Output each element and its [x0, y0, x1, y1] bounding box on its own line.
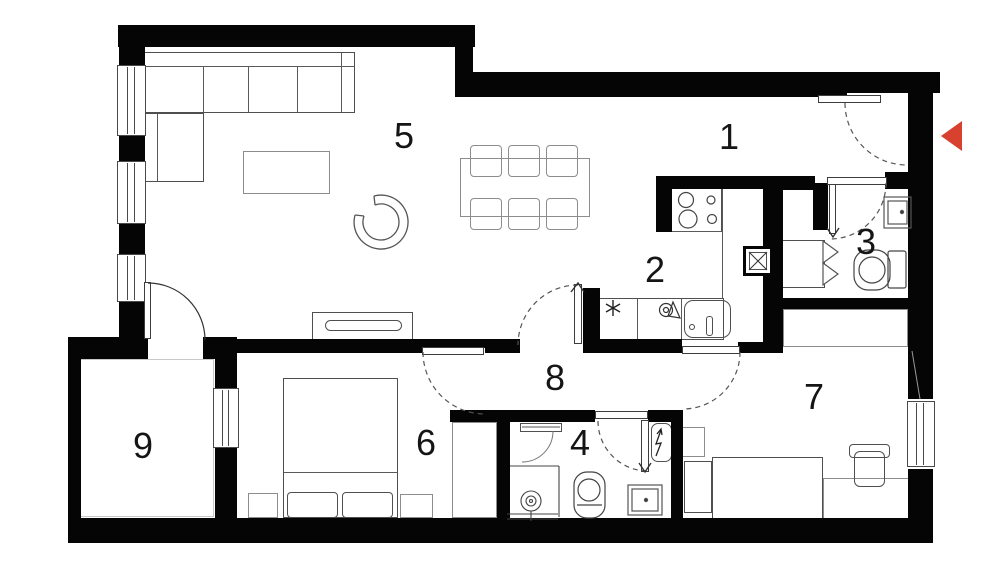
- wall-segment: [813, 183, 828, 230]
- entrance-door-leaf: [818, 95, 881, 103]
- room-label-5: 5: [394, 118, 414, 154]
- tv: [325, 320, 402, 331]
- dining-table: [460, 158, 590, 217]
- ventilation-shaft-frame: [749, 252, 767, 270]
- wall-segment: [583, 288, 600, 341]
- window: [117, 254, 146, 302]
- shower-door-arc: [522, 431, 553, 462]
- wall-segment: [119, 224, 145, 254]
- water-heater: [651, 423, 672, 462]
- entrance-arrow-icon: [941, 121, 962, 151]
- bed-line: [284, 472, 397, 473]
- radiator: [520, 423, 562, 432]
- toilet: [574, 472, 605, 518]
- counter-line: [722, 188, 723, 298]
- washbasin: [884, 197, 911, 228]
- door-swing-arc-room7: [683, 352, 740, 409]
- room-label-7: 7: [804, 379, 824, 415]
- shower: [507, 466, 559, 521]
- room-label-9: 9: [133, 428, 153, 464]
- wall-segment: [656, 176, 672, 232]
- sofa-cushion-line: [248, 66, 249, 112]
- door-swing-arc-entrance: [845, 103, 907, 165]
- door-leaf: [682, 346, 740, 354]
- window-balcony: [213, 388, 239, 448]
- stove: [670, 188, 722, 232]
- wall-segment-entrance-lintel: [845, 72, 940, 93]
- sofa-cushion-line: [203, 66, 204, 112]
- wall-segment: [885, 172, 908, 189]
- door-leaf: [827, 177, 887, 185]
- wall-segment: [908, 93, 933, 399]
- wardrobe: [452, 422, 497, 518]
- wall-segment: [450, 410, 595, 422]
- washing-machine: [782, 240, 825, 288]
- door-swing-arc-kitchen: [518, 285, 578, 345]
- door-leaf: [595, 411, 648, 419]
- closet: [783, 309, 908, 347]
- nightstand: [682, 427, 705, 457]
- window: [907, 401, 935, 467]
- door-leaf: [641, 420, 649, 472]
- wall-segment: [119, 136, 145, 161]
- room-label-4: 4: [570, 425, 590, 461]
- wall-segment: [215, 448, 237, 518]
- room-label-3: 3: [856, 224, 876, 260]
- sofa-back-line: [145, 66, 354, 67]
- sofa: [144, 52, 355, 113]
- pillow: [684, 461, 712, 513]
- window: [117, 65, 146, 136]
- wall-segment: [455, 72, 847, 97]
- balcony-door-leaf: [144, 282, 151, 339]
- room-label-6: 6: [416, 425, 436, 461]
- counter-line: [670, 231, 723, 232]
- door-swing-arc-balcony: [148, 283, 205, 340]
- sofa-chaise-line: [157, 114, 158, 181]
- sofa-chaise: [144, 113, 204, 182]
- armchair: [354, 195, 408, 249]
- wall-segment: [68, 518, 933, 543]
- door-swing-arc-bedroom: [423, 352, 485, 414]
- desk-chair-seat: [854, 451, 885, 487]
- nightstand: [248, 493, 278, 518]
- window: [117, 161, 146, 224]
- floor-plan: 1 2 3 4 5 6 7 8 9: [0, 0, 1000, 571]
- wall-segment: [237, 339, 422, 353]
- wall-segment: [583, 339, 682, 353]
- door-leaf: [574, 284, 582, 344]
- wall-segment: [119, 25, 145, 65]
- wall-segment: [68, 337, 81, 518]
- coffee-table: [243, 151, 330, 194]
- room-label-2: 2: [645, 252, 665, 288]
- pillow: [287, 492, 338, 518]
- wall-segment: [656, 176, 783, 189]
- wall-segment: [497, 415, 510, 518]
- counter-divider: [681, 299, 682, 339]
- wall-segment: [119, 302, 145, 340]
- room-label-8: 8: [545, 360, 565, 396]
- nightstand: [400, 494, 433, 518]
- wall-segment: [485, 339, 520, 353]
- washbasin: [628, 485, 662, 515]
- single-bed: [712, 457, 823, 520]
- wall-segment: [780, 298, 908, 309]
- wall-segment: [215, 352, 237, 388]
- kitchen-sink-tap: [706, 316, 713, 336]
- pillow: [342, 492, 393, 518]
- wall-segment: [671, 412, 683, 518]
- wall-segment: [780, 176, 815, 190]
- door-leaf: [422, 347, 484, 355]
- wall-segment: [118, 25, 475, 47]
- washer-door-symbol: [823, 241, 838, 285]
- counter-divider: [637, 299, 638, 339]
- room-label-1: 1: [719, 119, 739, 155]
- sofa-cushion-line: [297, 66, 298, 112]
- door-leaf: [829, 184, 836, 234]
- sofa-armrest-line: [341, 53, 342, 112]
